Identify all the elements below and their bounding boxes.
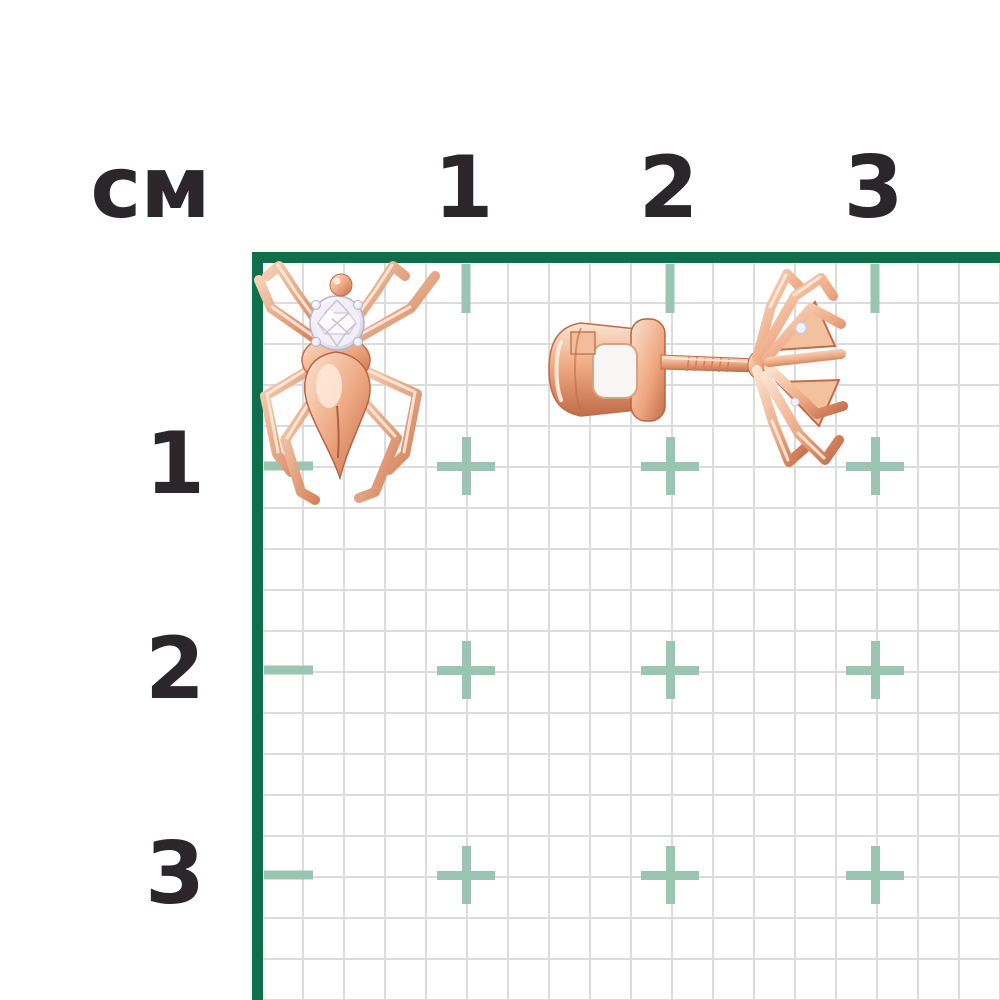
spider-earring-side-image: [543, 262, 848, 477]
cm-tick-top: [462, 264, 471, 313]
left-axis-label-1: 1: [70, 419, 204, 509]
unit-label-cm: см: [84, 143, 216, 233]
top-axis-label-2: 2: [639, 143, 698, 233]
spider-body: [302, 336, 370, 478]
spider-side-profile: [757, 274, 843, 462]
diamond-stone: [310, 296, 364, 350]
top-axis-label-3: 3: [844, 143, 903, 233]
top-ball: [330, 274, 352, 296]
left-axis-label-3: 3: [70, 829, 204, 919]
spider-earring-front-image: [253, 256, 449, 506]
cm-tick-left: [264, 871, 313, 880]
cm-tick-top: [871, 264, 880, 313]
product-size-chart: см 1 2 3 1 2 3: [0, 0, 1000, 1000]
top-axis-label-1: 1: [434, 143, 493, 233]
screw-back-clasp: [549, 319, 665, 421]
cm-tick-left: [264, 666, 313, 675]
left-axis-label-2: 2: [70, 624, 204, 714]
earring-post: [661, 352, 766, 378]
